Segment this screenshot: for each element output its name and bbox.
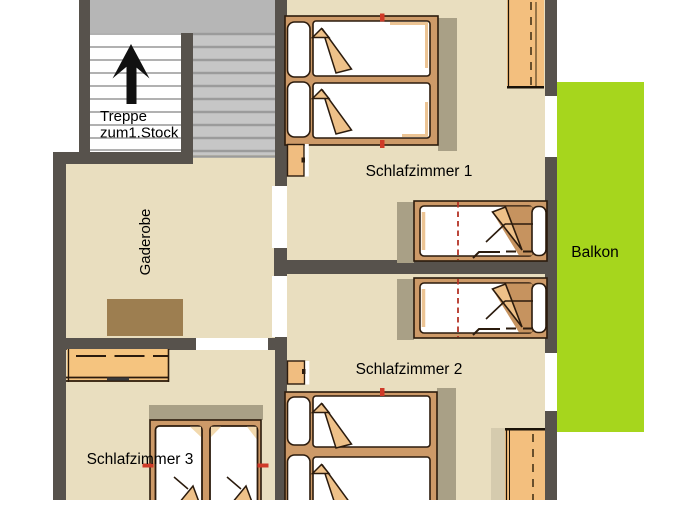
svg-text:Schlafzimmer 3: Schlafzimmer 3	[87, 451, 194, 468]
svg-text:zum1.Stock: zum1.Stock	[100, 125, 179, 142]
svg-text:Schlafzimmer 1: Schlafzimmer 1	[366, 163, 473, 180]
svg-text:Schlafzimmer 2: Schlafzimmer 2	[356, 361, 463, 378]
svg-text:Balkon: Balkon	[571, 244, 618, 261]
svg-text:Gaderobe: Gaderobe	[137, 209, 154, 276]
svg-text:Treppe: Treppe	[100, 108, 147, 125]
